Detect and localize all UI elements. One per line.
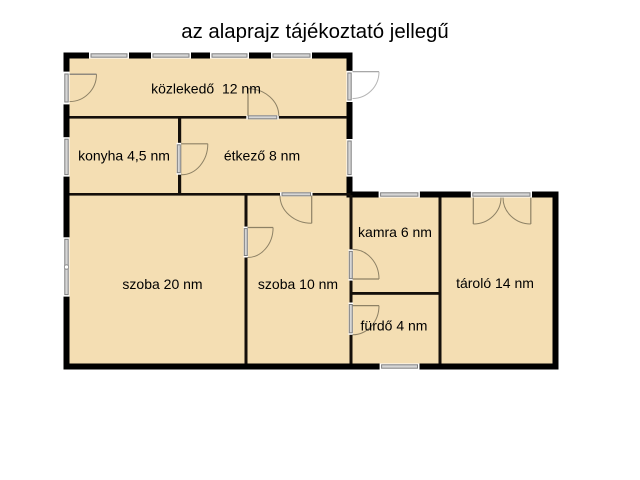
svg-text:az alaprajz tájékoztató jelleg: az alaprajz tájékoztató jellegű — [181, 21, 449, 43]
svg-text:konyha 4,5 nm: konyha 4,5 nm — [78, 148, 170, 164]
svg-text:tároló 14 nm: tároló 14 nm — [456, 275, 534, 291]
svg-text:étkező 8 nm: étkező 8 nm — [224, 148, 300, 164]
svg-text:kamra 6 nm: kamra 6 nm — [358, 224, 432, 240]
svg-text:szoba 10 nm: szoba 10 nm — [258, 276, 338, 292]
svg-text:szoba 20 nm: szoba 20 nm — [122, 276, 202, 292]
svg-text:közlekedő 12 nm: közlekedő 12 nm — [151, 81, 261, 97]
svg-text:fürdő 4 nm: fürdő 4 nm — [361, 318, 428, 334]
